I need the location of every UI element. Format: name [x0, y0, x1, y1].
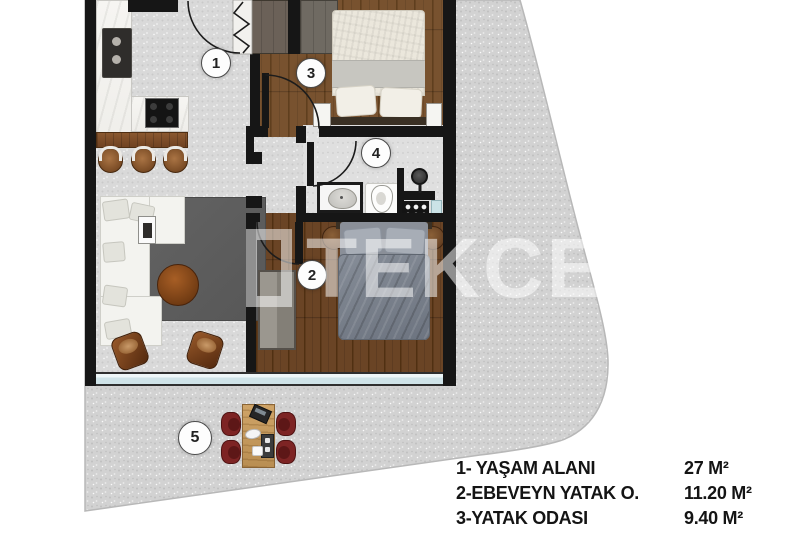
bathroom-sink-unit [317, 182, 363, 213]
stove-burner [150, 116, 157, 123]
bedroom-3-door-leaf [262, 73, 269, 128]
master-door-leaf [295, 222, 303, 264]
sofa-cushion [102, 284, 129, 307]
sofa-cushion [102, 241, 126, 263]
room-marker-label: 4 [372, 145, 380, 162]
nightstand [426, 103, 442, 127]
dining-chair [276, 412, 296, 436]
nightstand [313, 103, 331, 127]
room-marker-living: 1 [201, 48, 231, 78]
door-hinge-block [246, 196, 262, 208]
legend-label: 1- YAŞAM ALANI [456, 458, 684, 479]
hall-entry-wall-top [246, 130, 254, 152]
tray-item [265, 447, 270, 452]
glass-wall-left-post [85, 367, 96, 386]
bed-pillow [335, 85, 377, 118]
shower-head-icon [411, 168, 428, 185]
kitchen-sink [102, 28, 132, 78]
stool-backrest [132, 146, 155, 161]
tray-item [143, 223, 152, 238]
napkin [252, 446, 263, 456]
floor-plan-canvas: 1 2 3 4 5 TEKCE 1- YAŞAM ALANI 27 M² 2-E… [0, 0, 800, 533]
outer-wall-right [443, 0, 456, 386]
room-marker-label: 3 [307, 65, 315, 82]
room-marker-terrace: 5 [178, 421, 212, 455]
legend-label: 3-YATAK ODASI [456, 508, 684, 529]
bedroom-3-left-wall [250, 54, 260, 128]
legend-value: 27 M² [684, 458, 729, 479]
door-hinge-block [246, 152, 262, 164]
legend-row: 1- YAŞAM ALANI 27 M² [456, 456, 791, 481]
legend-row: 2-EBEVEYN YATAK O. 11.20 M² [456, 481, 791, 506]
dining-chair [276, 440, 296, 464]
chair-seat [228, 446, 240, 459]
master-wardrobe [258, 270, 296, 350]
sink-bowl [112, 55, 121, 64]
bathroom-door-leaf [307, 142, 314, 186]
room-marker-label: 1 [212, 55, 220, 72]
bed-pillow [379, 87, 423, 119]
stove-burner [166, 116, 173, 123]
closet-divider-wall [288, 0, 300, 54]
room-marker-master-bedroom: 2 [297, 260, 327, 290]
chair-seat [278, 446, 290, 459]
bedroom-3-bottom-wall-right [319, 126, 443, 137]
bar-stool [98, 148, 123, 173]
bar-stool [163, 148, 188, 173]
round-ottoman [157, 264, 199, 306]
living-master-wall [246, 213, 256, 373]
legend-row: 3-YATAK ODASI 9.40 M² [456, 506, 791, 531]
toilet-bowl [376, 192, 386, 205]
room-marker-label: 5 [191, 429, 200, 447]
tray-item [265, 438, 270, 443]
stove-burner [166, 103, 173, 110]
bathroom-left-wall-top [296, 126, 306, 143]
legend-value: 11.20 M² [684, 483, 752, 504]
bed-pillow [384, 227, 426, 256]
armchair-seat [195, 335, 218, 354]
dining-chair [221, 440, 241, 464]
legend-value: 9.40 M² [684, 508, 743, 529]
room-marker-bathroom: 4 [361, 138, 391, 168]
legend-label: 2-EBEVEYN YATAK O. [456, 483, 684, 504]
stool-backrest [164, 146, 187, 161]
sink-bowl [112, 37, 121, 46]
master-top-wall [298, 213, 443, 222]
armchair-seat [116, 336, 140, 356]
stove-burner [150, 103, 157, 110]
balcony-glass-wall [96, 372, 443, 386]
room-marker-label: 2 [308, 267, 316, 284]
area-legend: 1- YAŞAM ALANI 27 M² 2-EBEVEYN YATAK O. … [456, 456, 791, 531]
washbasin [328, 188, 357, 209]
stool-backrest [99, 146, 122, 161]
chair-seat [278, 418, 290, 431]
dining-chair [221, 412, 241, 436]
bed-pillow [343, 226, 383, 255]
shower-base-bar [404, 191, 435, 200]
bedroom-3-headboard [330, 117, 427, 125]
entry-closet [248, 0, 290, 54]
sofa-cushion [102, 198, 131, 221]
kitchen-top-wall-stub [128, 0, 178, 12]
outer-wall-left [85, 0, 96, 378]
sofa-tray-table [138, 216, 156, 244]
bedroom-3-bed-throw [332, 60, 425, 88]
chair-seat [228, 418, 240, 431]
laptop-screen [255, 408, 267, 416]
room-marker-bedroom: 3 [296, 58, 326, 88]
bar-stool [131, 148, 156, 173]
kitchen-stove [145, 98, 179, 128]
faucet-dot [340, 196, 343, 199]
master-bed-duvet [338, 254, 430, 340]
